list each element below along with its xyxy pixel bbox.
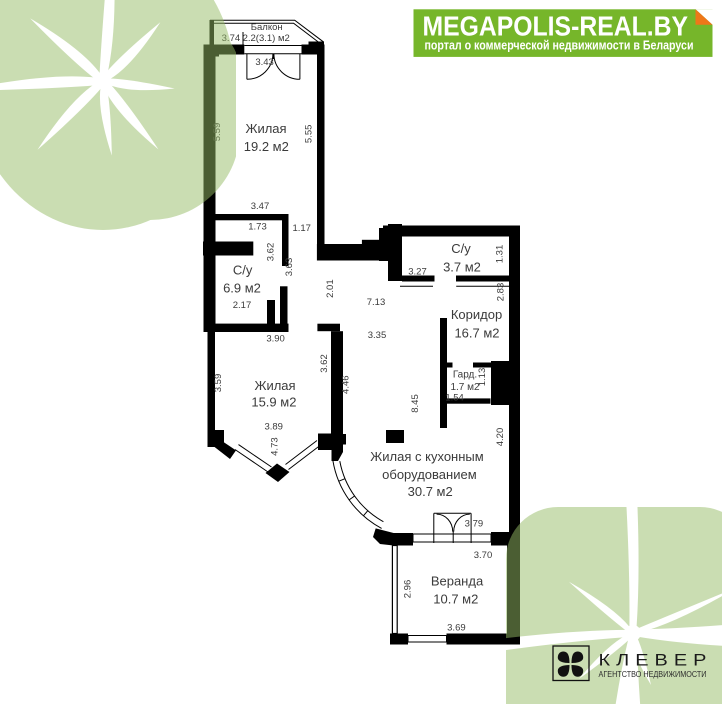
svg-text:3.47: 3.47	[251, 201, 270, 212]
svg-text:3.63: 3.63	[284, 258, 295, 277]
svg-text:Коридор: Коридор	[451, 307, 502, 322]
svg-text:1.54: 1.54	[445, 392, 464, 403]
svg-text:4.46: 4.46	[341, 375, 352, 394]
svg-text:10.7 м2: 10.7 м2	[433, 592, 478, 607]
svg-text:3.59: 3.59	[213, 374, 224, 393]
svg-text:5.55: 5.55	[304, 125, 315, 144]
svg-text:3.70: 3.70	[474, 550, 493, 561]
svg-text:4.20: 4.20	[495, 428, 506, 447]
svg-text:3.90: 3.90	[266, 334, 285, 345]
svg-text:3.62: 3.62	[266, 243, 277, 262]
svg-text:Жилая: Жилая	[245, 121, 286, 136]
svg-text:Балкон: Балкон	[251, 22, 283, 33]
svg-text:3.43: 3.43	[255, 57, 274, 68]
svg-text:30.7 м2: 30.7 м2	[408, 484, 453, 499]
svg-text:4.73: 4.73	[270, 437, 281, 456]
svg-text:С/у: С/у	[233, 263, 253, 278]
svg-text:2.83: 2.83	[496, 283, 507, 302]
svg-text:1.17: 1.17	[292, 223, 311, 234]
svg-text:КЛЕВЕР: КЛЕВЕР	[599, 651, 713, 669]
svg-text:3.7 м2: 3.7 м2	[443, 260, 481, 275]
svg-text:3.69: 3.69	[447, 622, 466, 633]
svg-text:оборудованием: оборудованием	[382, 467, 477, 482]
svg-text:3.27: 3.27	[408, 267, 427, 278]
svg-text:3.79: 3.79	[465, 519, 484, 530]
svg-text:3.89: 3.89	[264, 422, 283, 433]
svg-text:7.13: 7.13	[367, 297, 386, 308]
svg-text:2.17: 2.17	[233, 300, 252, 311]
svg-text:16.7 м2: 16.7 м2	[454, 326, 499, 341]
svg-text:6.9 м2: 6.9 м2	[223, 281, 261, 296]
svg-text:2.2(3.1) м2: 2.2(3.1) м2	[243, 33, 290, 44]
svg-text:Гард.: Гард.	[453, 370, 477, 381]
svg-text:портал о коммерческой недвижим: портал о коммерческой недвижимости в Бел…	[425, 38, 694, 53]
svg-text:Жилая: Жилая	[254, 378, 295, 393]
svg-text:2.96: 2.96	[403, 580, 414, 599]
svg-text:19.2 м2: 19.2 м2	[244, 139, 289, 154]
svg-text:3.62: 3.62	[319, 354, 330, 373]
svg-text:АГЕНТСТВО НЕДВИЖИМОСТИ: АГЕНТСТВО НЕДВИЖИМОСТИ	[599, 669, 707, 679]
svg-text:1.31: 1.31	[495, 245, 506, 264]
svg-text:Веранда: Веранда	[431, 574, 484, 589]
svg-text:15.9 м2: 15.9 м2	[251, 395, 296, 410]
svg-text:Жилая с кухонным: Жилая с кухонным	[370, 449, 483, 464]
svg-text:С/у: С/у	[451, 241, 471, 256]
svg-text:3.35: 3.35	[368, 330, 387, 341]
svg-text:1.73: 1.73	[248, 222, 267, 233]
svg-text:8.45: 8.45	[410, 394, 421, 413]
svg-text:1.13: 1.13	[477, 368, 488, 387]
svg-text:2.01: 2.01	[325, 279, 336, 298]
